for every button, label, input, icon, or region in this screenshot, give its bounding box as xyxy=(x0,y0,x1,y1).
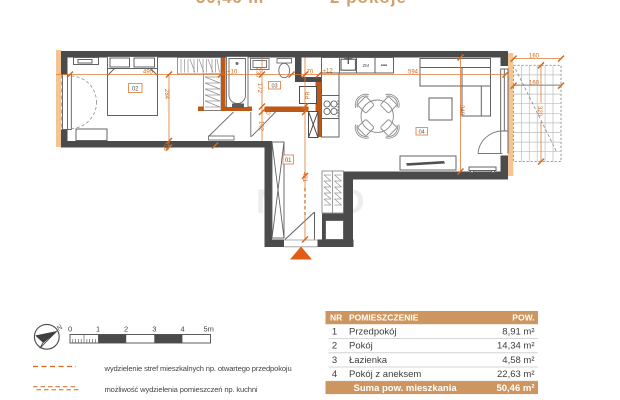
svg-text:4: 4 xyxy=(332,369,337,380)
svg-text:1: 1 xyxy=(332,327,337,338)
svg-text:PR: PR xyxy=(306,92,312,100)
svg-text:102: 102 xyxy=(258,121,264,132)
svg-text:348: 348 xyxy=(458,105,464,116)
svg-text:50,46 m²: 50,46 m² xyxy=(196,0,270,7)
svg-text:284: 284 xyxy=(163,89,169,100)
svg-text:3: 3 xyxy=(152,325,156,334)
svg-text:możliwość wydzielenia pomieszc: możliwość wydzielenia pomieszczeń np. ku… xyxy=(105,385,258,394)
svg-text:16: 16 xyxy=(162,144,168,151)
svg-text:4,58 m²: 4,58 m² xyxy=(502,355,534,366)
svg-text:Pokój: Pokój xyxy=(349,341,373,352)
svg-text:Przedpokój: Przedpokój xyxy=(349,327,397,338)
svg-text:172: 172 xyxy=(256,83,262,94)
svg-text:22,63 m²: 22,63 m² xyxy=(497,369,535,380)
svg-text:01: 01 xyxy=(285,158,292,164)
svg-text:Pokój z aneksem: Pokój z aneksem xyxy=(349,369,421,380)
svg-text:50,46 m²: 50,46 m² xyxy=(496,383,534,394)
svg-text:+12: +12 xyxy=(323,69,334,75)
svg-text:4: 4 xyxy=(181,325,185,334)
svg-text:2 pokoje: 2 pokoje xyxy=(330,0,407,7)
svg-text:160: 160 xyxy=(529,81,540,87)
svg-text:POMIESZCZENIE: POMIESZCZENIE xyxy=(349,313,419,323)
svg-text:2: 2 xyxy=(124,325,128,334)
svg-text:495: 495 xyxy=(143,70,154,76)
svg-text:3: 3 xyxy=(332,355,337,366)
svg-text:594: 594 xyxy=(408,70,419,76)
svg-text:POW.: POW. xyxy=(512,313,534,323)
svg-text:14,34 m²: 14,34 m² xyxy=(497,341,535,352)
svg-text:1: 1 xyxy=(96,325,100,334)
svg-text:•••: ••• xyxy=(381,64,387,70)
svg-text:NR: NR xyxy=(330,313,342,323)
svg-text:8,91 m²: 8,91 m² xyxy=(502,327,534,338)
svg-text:0: 0 xyxy=(68,325,72,334)
svg-text:02: 02 xyxy=(132,87,139,93)
svg-text:03: 03 xyxy=(271,84,277,90)
svg-text:230: 230 xyxy=(255,68,261,79)
svg-text:70: 70 xyxy=(307,70,314,76)
svg-text:Suma pow. mieszkania: Suma pow. mieszkania xyxy=(354,383,458,394)
svg-text:04: 04 xyxy=(419,130,425,136)
svg-text:160: 160 xyxy=(529,54,540,60)
svg-text:Łazienka: Łazienka xyxy=(349,355,388,366)
svg-text:2: 2 xyxy=(332,341,337,352)
svg-text:5m: 5m xyxy=(204,325,214,334)
svg-text:ZM: ZM xyxy=(362,63,369,68)
svg-text:421: 421 xyxy=(301,172,307,183)
svg-text:wydzielenie stref mieszkalnych: wydzielenie stref mieszkalnych np. otwar… xyxy=(104,364,292,373)
svg-text:320: 320 xyxy=(536,106,542,117)
svg-text:+10: +10 xyxy=(227,70,238,76)
svg-text:10: 10 xyxy=(264,108,270,115)
